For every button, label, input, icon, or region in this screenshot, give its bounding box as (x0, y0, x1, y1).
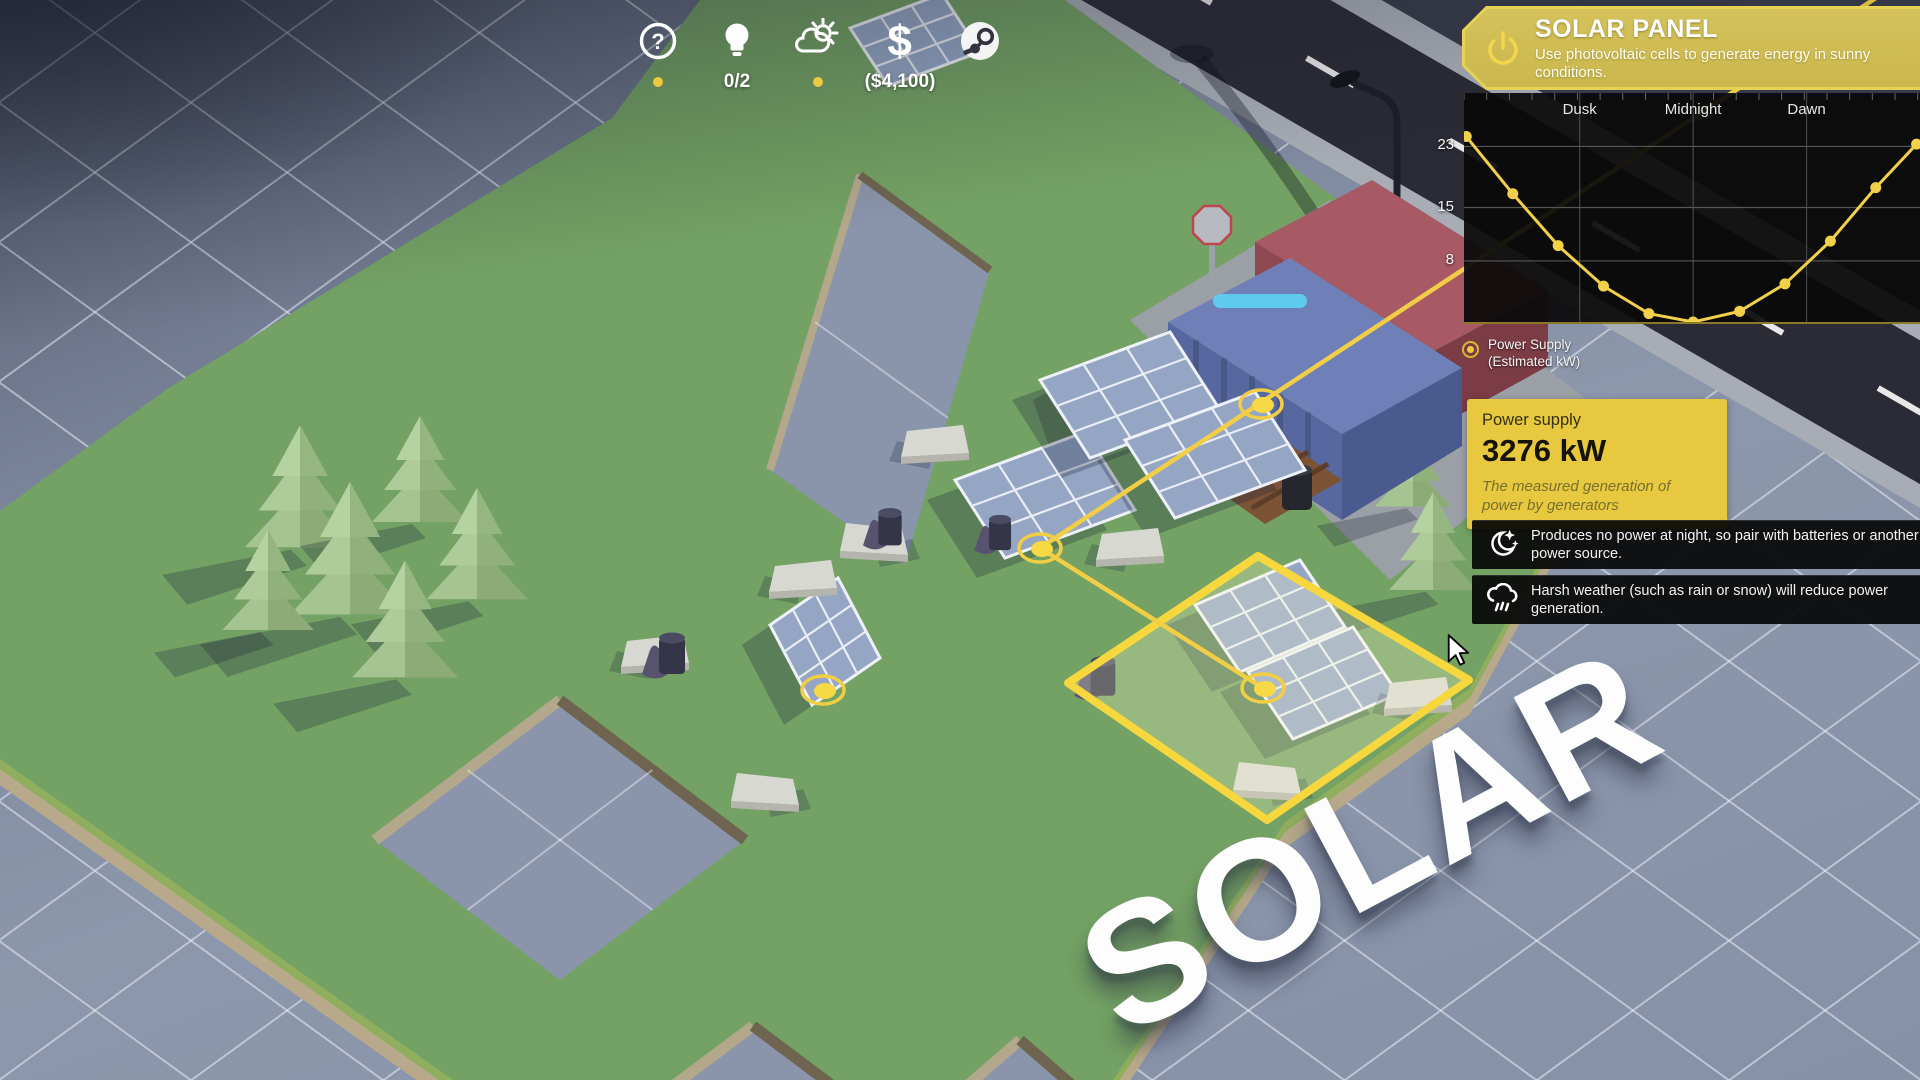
note-night: Produces no power at night, so pair with… (1472, 520, 1920, 569)
objectives-button[interactable]: 0/2 (714, 18, 760, 93)
help-button[interactable]: ? (635, 18, 681, 87)
steam-button[interactable] (957, 18, 1003, 69)
chart-x-tick-label: Midnight (1665, 101, 1722, 118)
power-supply-description: The measured generation of power by gene… (1482, 477, 1712, 515)
help-indicator-dot (653, 77, 663, 87)
moon-stars-icon (1484, 528, 1522, 562)
tooltip-notes: Produces no power at night, so pair with… (1472, 520, 1920, 630)
tooltip-body: SOLAR PANEL Use photovoltaic cells to ge… (1465, 9, 1920, 87)
power-icon (1481, 26, 1525, 70)
objectives-count: 0/2 (714, 71, 760, 93)
dollar-icon: $ (877, 18, 923, 64)
build-progress-bar (1213, 294, 1307, 308)
legend-label-line2: (Estimated kW) (1488, 354, 1580, 371)
money-value: ($4,100) (865, 71, 936, 93)
note-weather: Harsh weather (such as rain or snow) wil… (1472, 575, 1920, 624)
solar-panel-tooltip: SOLAR PANEL Use photovoltaic cells to ge… (1462, 6, 1920, 90)
note-night-text: Produces no power at night, so pair with… (1531, 527, 1920, 563)
power-supply-value: 3276 kW (1482, 433, 1712, 469)
power-supply-panel: Power supply 3276 kW The measured genera… (1467, 399, 1727, 529)
chart-y-tick-label: 15 (1398, 198, 1454, 215)
weather-indicator-dot (813, 77, 823, 87)
power-output-chart: Dusk Midnight Dawn (1464, 93, 1920, 324)
svg-text:$: $ (888, 18, 912, 64)
steam-icon (957, 18, 1003, 64)
chart-y-tick-label: 23 (1398, 136, 1454, 153)
chart-plot-area (1464, 93, 1920, 322)
chart-x-tick-label: Dusk (1563, 101, 1597, 118)
money-button[interactable]: $ ($4,100) (865, 18, 936, 93)
game-screen: SOLAR ? 0/2 $ ($4,100) (0, 0, 1920, 1080)
question-circle-icon: ? (635, 18, 681, 64)
dot-icon (1462, 341, 1479, 358)
mouse-cursor-icon (1444, 634, 1474, 666)
legend-label-line1: Power Supply (1488, 337, 1580, 354)
note-weather-text: Harsh weather (such as rain or snow) wil… (1531, 582, 1920, 618)
weather-button[interactable] (792, 18, 844, 87)
lightbulb-icon (714, 18, 760, 64)
sun-behind-cloud-icon (792, 18, 844, 64)
svg-text:?: ? (651, 29, 664, 54)
tooltip-title: SOLAR PANEL (1535, 15, 1907, 44)
chart-legend: Power Supply (Estimated kW) (1462, 337, 1580, 370)
tooltip-description: Use photovoltaic cells to generate energ… (1535, 46, 1907, 82)
power-supply-label: Power supply (1482, 411, 1712, 430)
rain-cloud-icon (1484, 583, 1522, 617)
chart-x-tick-label: Dawn (1787, 101, 1825, 118)
chart-y-tick-label: 8 (1398, 251, 1454, 268)
